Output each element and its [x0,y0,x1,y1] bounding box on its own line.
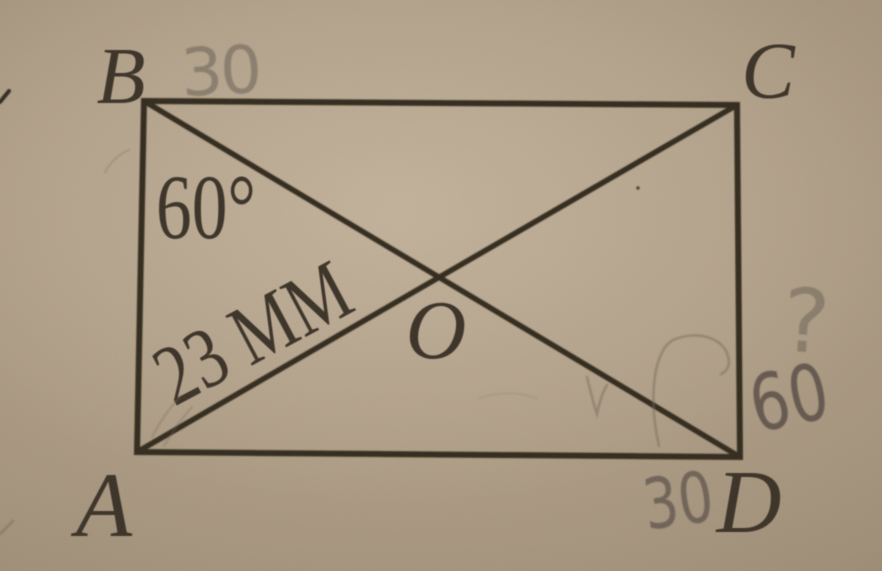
photo-grain [0,0,882,571]
geometry-figure: B C A D O 60° 23 мм 30 ? 60 30 [0,0,882,571]
notebook-photo: B C A D O 60° 23 мм 30 ? 60 30 [0,0,882,571]
